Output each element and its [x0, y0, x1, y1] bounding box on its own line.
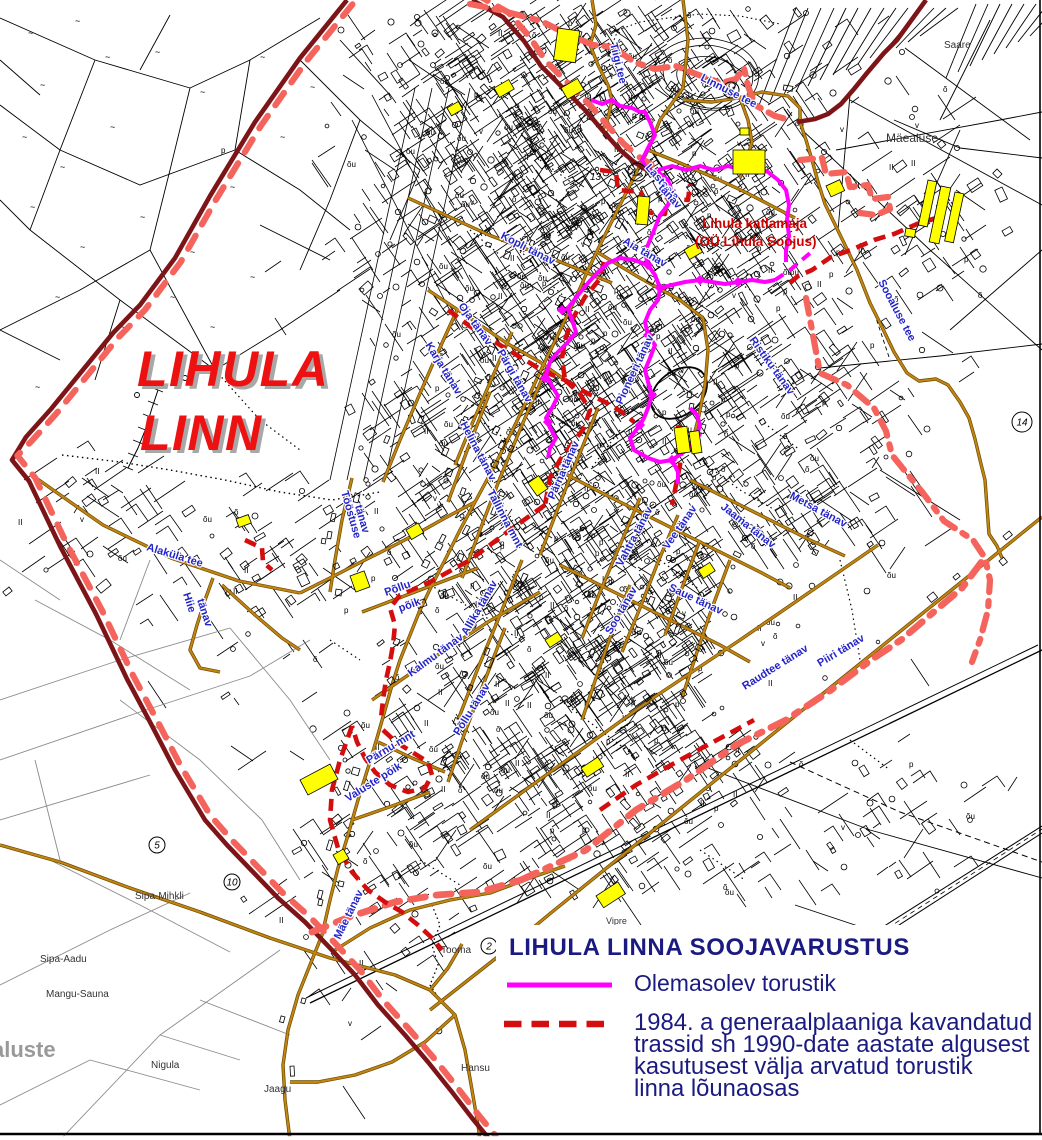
svg-text:p: p	[591, 531, 596, 540]
svg-text:~: ~	[260, 52, 265, 62]
svg-text:~: ~	[30, 202, 35, 212]
svg-text:p: p	[822, 398, 827, 407]
svg-text:õu: õu	[480, 356, 489, 365]
svg-text:~: ~	[230, 182, 235, 192]
svg-text:Tooma: Tooma	[441, 945, 471, 956]
svg-text:õu: õu	[623, 318, 632, 327]
svg-text:õu: õu	[561, 253, 570, 262]
svg-text:II: II	[713, 378, 717, 387]
svg-text:Hansu: Hansu	[461, 1063, 490, 1074]
svg-text:~: ~	[250, 272, 255, 282]
svg-text:II: II	[527, 701, 531, 710]
svg-text:õu: õu	[203, 515, 212, 524]
svg-text:õ: õ	[313, 655, 318, 664]
svg-text:õu: õu	[564, 126, 573, 135]
svg-text:14: 14	[1016, 418, 1028, 429]
svg-text:p: p	[614, 286, 619, 295]
svg-text:12: 12	[631, 168, 643, 179]
svg-text:õ: õ	[805, 465, 810, 474]
svg-text:II: II	[470, 582, 474, 591]
svg-text:II: II	[587, 228, 591, 237]
svg-text:II: II	[514, 629, 518, 638]
svg-text:õ: õ	[783, 432, 788, 441]
svg-text:II: II	[585, 305, 589, 314]
svg-text:p: p	[582, 825, 587, 834]
svg-text:II: II	[279, 916, 283, 925]
svg-text:p: p	[656, 332, 661, 341]
svg-text:õ: õ	[668, 56, 673, 65]
svg-text:II: II	[889, 163, 893, 172]
svg-text:õ: õ	[234, 508, 239, 517]
svg-text:Sipa-Aadu: Sipa-Aadu	[40, 954, 87, 965]
svg-text:~: ~	[75, 16, 80, 26]
svg-text:õu: õu	[455, 191, 464, 200]
svg-text:p: p	[675, 700, 680, 709]
svg-text:II: II	[438, 688, 442, 697]
svg-text:p: p	[554, 534, 559, 543]
svg-text:II: II	[498, 29, 502, 38]
svg-text:v: v	[348, 1019, 352, 1028]
svg-text:p: p	[568, 19, 573, 28]
svg-text:õu: õu	[520, 281, 529, 290]
svg-text:~: ~	[310, 82, 315, 92]
svg-text:p: p	[654, 736, 659, 745]
svg-text:II: II	[545, 671, 549, 680]
svg-text:õ: õ	[721, 465, 726, 474]
svg-text:õu: õu	[481, 772, 490, 781]
svg-text:II: II	[424, 719, 428, 728]
svg-text:II: II	[510, 254, 514, 263]
svg-text:õ: õ	[512, 195, 517, 204]
svg-text:õu: õu	[347, 160, 356, 169]
svg-text:2: 2	[485, 942, 492, 953]
svg-text:õ: õ	[751, 542, 756, 551]
svg-text:II: II	[657, 651, 661, 660]
svg-text:õ: õ	[655, 508, 660, 517]
svg-text:õ: õ	[527, 645, 532, 654]
svg-text:v: v	[479, 127, 483, 136]
svg-text:õu: õu	[576, 341, 585, 350]
svg-text:õu: õu	[444, 420, 453, 429]
svg-text:~: ~	[80, 242, 85, 252]
svg-text:v: v	[682, 609, 686, 618]
svg-text:õu: õu	[501, 766, 510, 775]
svg-text:õu: õu	[725, 888, 734, 897]
svg-text:õu: õu	[426, 128, 435, 137]
svg-text:13: 13	[590, 172, 602, 183]
svg-text:Sipa-Mihkli: Sipa-Mihkli	[135, 891, 184, 902]
svg-text:õu: õu	[587, 591, 596, 600]
svg-text:II: II	[95, 467, 99, 476]
svg-text:II: II	[817, 280, 821, 289]
svg-text:LIHULA: LIHULA	[137, 341, 329, 397]
svg-text:v: v	[841, 823, 845, 832]
svg-text:õ: õ	[943, 85, 948, 94]
svg-text:p: p	[539, 593, 544, 602]
svg-text:v: v	[737, 139, 741, 148]
svg-text:õ: õ	[532, 31, 537, 40]
svg-text:õu: õu	[541, 231, 550, 240]
svg-text:II: II	[441, 785, 445, 794]
svg-text:Jaagu: Jaagu	[264, 1084, 291, 1095]
svg-text:õu: õu	[409, 840, 418, 849]
svg-text:p: p	[591, 336, 596, 345]
svg-text:õ: õ	[363, 857, 368, 866]
svg-text:p: p	[783, 287, 788, 296]
svg-text:p: p	[606, 737, 611, 746]
svg-text:Olemasolev torustik: Olemasolev torustik	[634, 970, 836, 996]
svg-text:~: ~	[140, 212, 145, 222]
svg-text:õ: õ	[773, 632, 778, 641]
svg-text:õu: õu	[887, 571, 896, 580]
svg-text:(OÜ Lihula Soojus): (OÜ Lihula Soojus)	[695, 234, 817, 249]
svg-text:II: II	[546, 811, 550, 820]
svg-text:LIHULA LINNA SOOJAVARUSTUS: LIHULA LINNA SOOJAVARUSTUS	[509, 934, 910, 961]
svg-text:õ: õ	[496, 725, 501, 734]
svg-text:p: p	[601, 197, 606, 206]
svg-text:II: II	[374, 507, 378, 516]
svg-text:II: II	[768, 266, 772, 275]
svg-text:~: ~	[210, 322, 215, 332]
svg-text:~: ~	[55, 292, 60, 302]
svg-text:II: II	[550, 601, 554, 610]
svg-text:p: p	[964, 255, 969, 264]
svg-text:õ: õ	[564, 604, 569, 613]
svg-text:~: ~	[155, 47, 160, 57]
svg-text:p: p	[500, 539, 505, 548]
svg-text:p: p	[776, 304, 781, 313]
svg-text:õu: õu	[406, 147, 415, 156]
svg-text:p: p	[599, 538, 604, 547]
svg-text:õu: õu	[439, 262, 448, 271]
svg-text:õu: õu	[429, 745, 438, 754]
svg-text:v: v	[732, 291, 736, 300]
svg-text:p: p	[435, 384, 440, 393]
svg-text:II: II	[911, 159, 915, 168]
svg-text:5: 5	[154, 841, 160, 852]
svg-text:II: II	[625, 770, 629, 779]
svg-text:õu: õu	[439, 439, 448, 448]
svg-text:p: p	[595, 549, 600, 558]
svg-text:õu: õu	[571, 419, 580, 428]
svg-text:õu: õu	[548, 107, 557, 116]
svg-text:p: p	[344, 606, 349, 615]
svg-text:õu: õu	[517, 272, 526, 281]
svg-text:õu: õu	[538, 274, 547, 283]
svg-text:~: ~	[200, 87, 205, 97]
svg-text:v: v	[631, 694, 635, 703]
svg-text:p: p	[909, 760, 914, 769]
svg-text:v: v	[840, 125, 844, 134]
svg-text:~: ~	[28, 28, 33, 38]
svg-text:Nigula: Nigula	[151, 1060, 180, 1071]
svg-text:~: ~	[40, 80, 45, 90]
svg-text:p: p	[597, 441, 602, 450]
svg-text:õ: õ	[458, 786, 463, 795]
svg-text:õ: õ	[435, 606, 440, 615]
svg-text:~: ~	[280, 132, 285, 142]
svg-text:LINN: LINN	[140, 405, 263, 461]
svg-text:õu: õu	[966, 812, 975, 821]
svg-text:õu: õu	[781, 412, 790, 421]
svg-text:II: II	[18, 518, 22, 527]
svg-text:II: II	[498, 292, 502, 301]
svg-text:p: p	[662, 408, 667, 417]
svg-text:õu: õu	[435, 662, 444, 671]
svg-text:Saare: Saare	[944, 40, 971, 51]
svg-text:õu: õu	[689, 490, 698, 499]
svg-text:õu: õu	[461, 200, 470, 209]
svg-text:õu: õu	[545, 556, 554, 565]
svg-text:II: II	[424, 427, 428, 436]
svg-text:10: 10	[226, 878, 238, 889]
svg-text:p: p	[721, 395, 726, 404]
svg-text:õu: õu	[608, 303, 617, 312]
svg-text:õu: õu	[544, 711, 553, 720]
svg-text:p: p	[603, 329, 608, 338]
svg-text:Mäealuse: Mäealuse	[886, 131, 938, 145]
svg-text:õu: õu	[118, 554, 127, 563]
svg-text:õu: õu	[504, 123, 513, 132]
svg-text:p: p	[870, 341, 875, 350]
svg-text:II: II	[524, 153, 528, 162]
svg-text:õu: õu	[490, 708, 499, 717]
svg-text:õu: õu	[657, 480, 666, 489]
svg-text:II: II	[495, 680, 499, 689]
svg-text:õ: õ	[714, 187, 719, 196]
svg-text:II: II	[577, 123, 581, 132]
svg-text:II: II	[608, 578, 612, 587]
svg-text:~: ~	[105, 52, 110, 62]
svg-text:p: p	[371, 574, 376, 583]
svg-text:p: p	[550, 826, 555, 835]
svg-text:~: ~	[60, 162, 65, 172]
svg-text:Mangu-Sauna: Mangu-Sauna	[46, 989, 109, 1000]
svg-text:õu: õu	[361, 721, 370, 730]
svg-text:v: v	[433, 494, 437, 503]
svg-text:~: ~	[110, 122, 115, 132]
svg-text:õu: õu	[483, 862, 492, 871]
svg-text:õ: õ	[645, 132, 650, 141]
svg-text:v: v	[437, 501, 441, 510]
svg-text:õu: õu	[810, 454, 819, 463]
svg-text:p: p	[726, 410, 731, 419]
svg-text:~: ~	[22, 132, 27, 142]
svg-text:p: p	[676, 547, 681, 556]
svg-text:~: ~	[170, 292, 175, 302]
svg-text:p: p	[692, 149, 697, 158]
svg-text:p: p	[829, 270, 834, 279]
svg-text:õu: õu	[440, 77, 449, 86]
svg-text:II: II	[768, 679, 772, 688]
svg-text:p: p	[474, 90, 479, 99]
svg-text:õ: õ	[724, 430, 729, 439]
svg-text:II: II	[515, 759, 519, 768]
svg-text:v: v	[470, 198, 474, 207]
svg-text:Vipre: Vipre	[606, 916, 627, 926]
svg-text:II: II	[668, 347, 672, 356]
svg-text:v: v	[80, 515, 84, 524]
svg-text:linna lõunaosas: linna lõunaosas	[634, 1075, 799, 1102]
svg-text:II: II	[628, 94, 632, 103]
svg-text:p: p	[735, 361, 740, 370]
svg-text:v: v	[761, 639, 765, 648]
svg-text:õu: õu	[494, 786, 503, 795]
svg-text:II: II	[244, 566, 248, 575]
svg-text:II: II	[662, 437, 666, 446]
svg-text:p: p	[712, 473, 717, 482]
svg-text:õu: õu	[588, 784, 597, 793]
svg-text:~: ~	[35, 382, 40, 392]
svg-text:II: II	[505, 699, 509, 708]
svg-text:aluste: aluste	[0, 1037, 56, 1062]
svg-text:p: p	[553, 801, 558, 810]
svg-text:Lihula katlamaja: Lihula katlamaja	[702, 216, 808, 231]
svg-text:õu: õu	[664, 658, 673, 667]
svg-text:v: v	[915, 121, 919, 130]
